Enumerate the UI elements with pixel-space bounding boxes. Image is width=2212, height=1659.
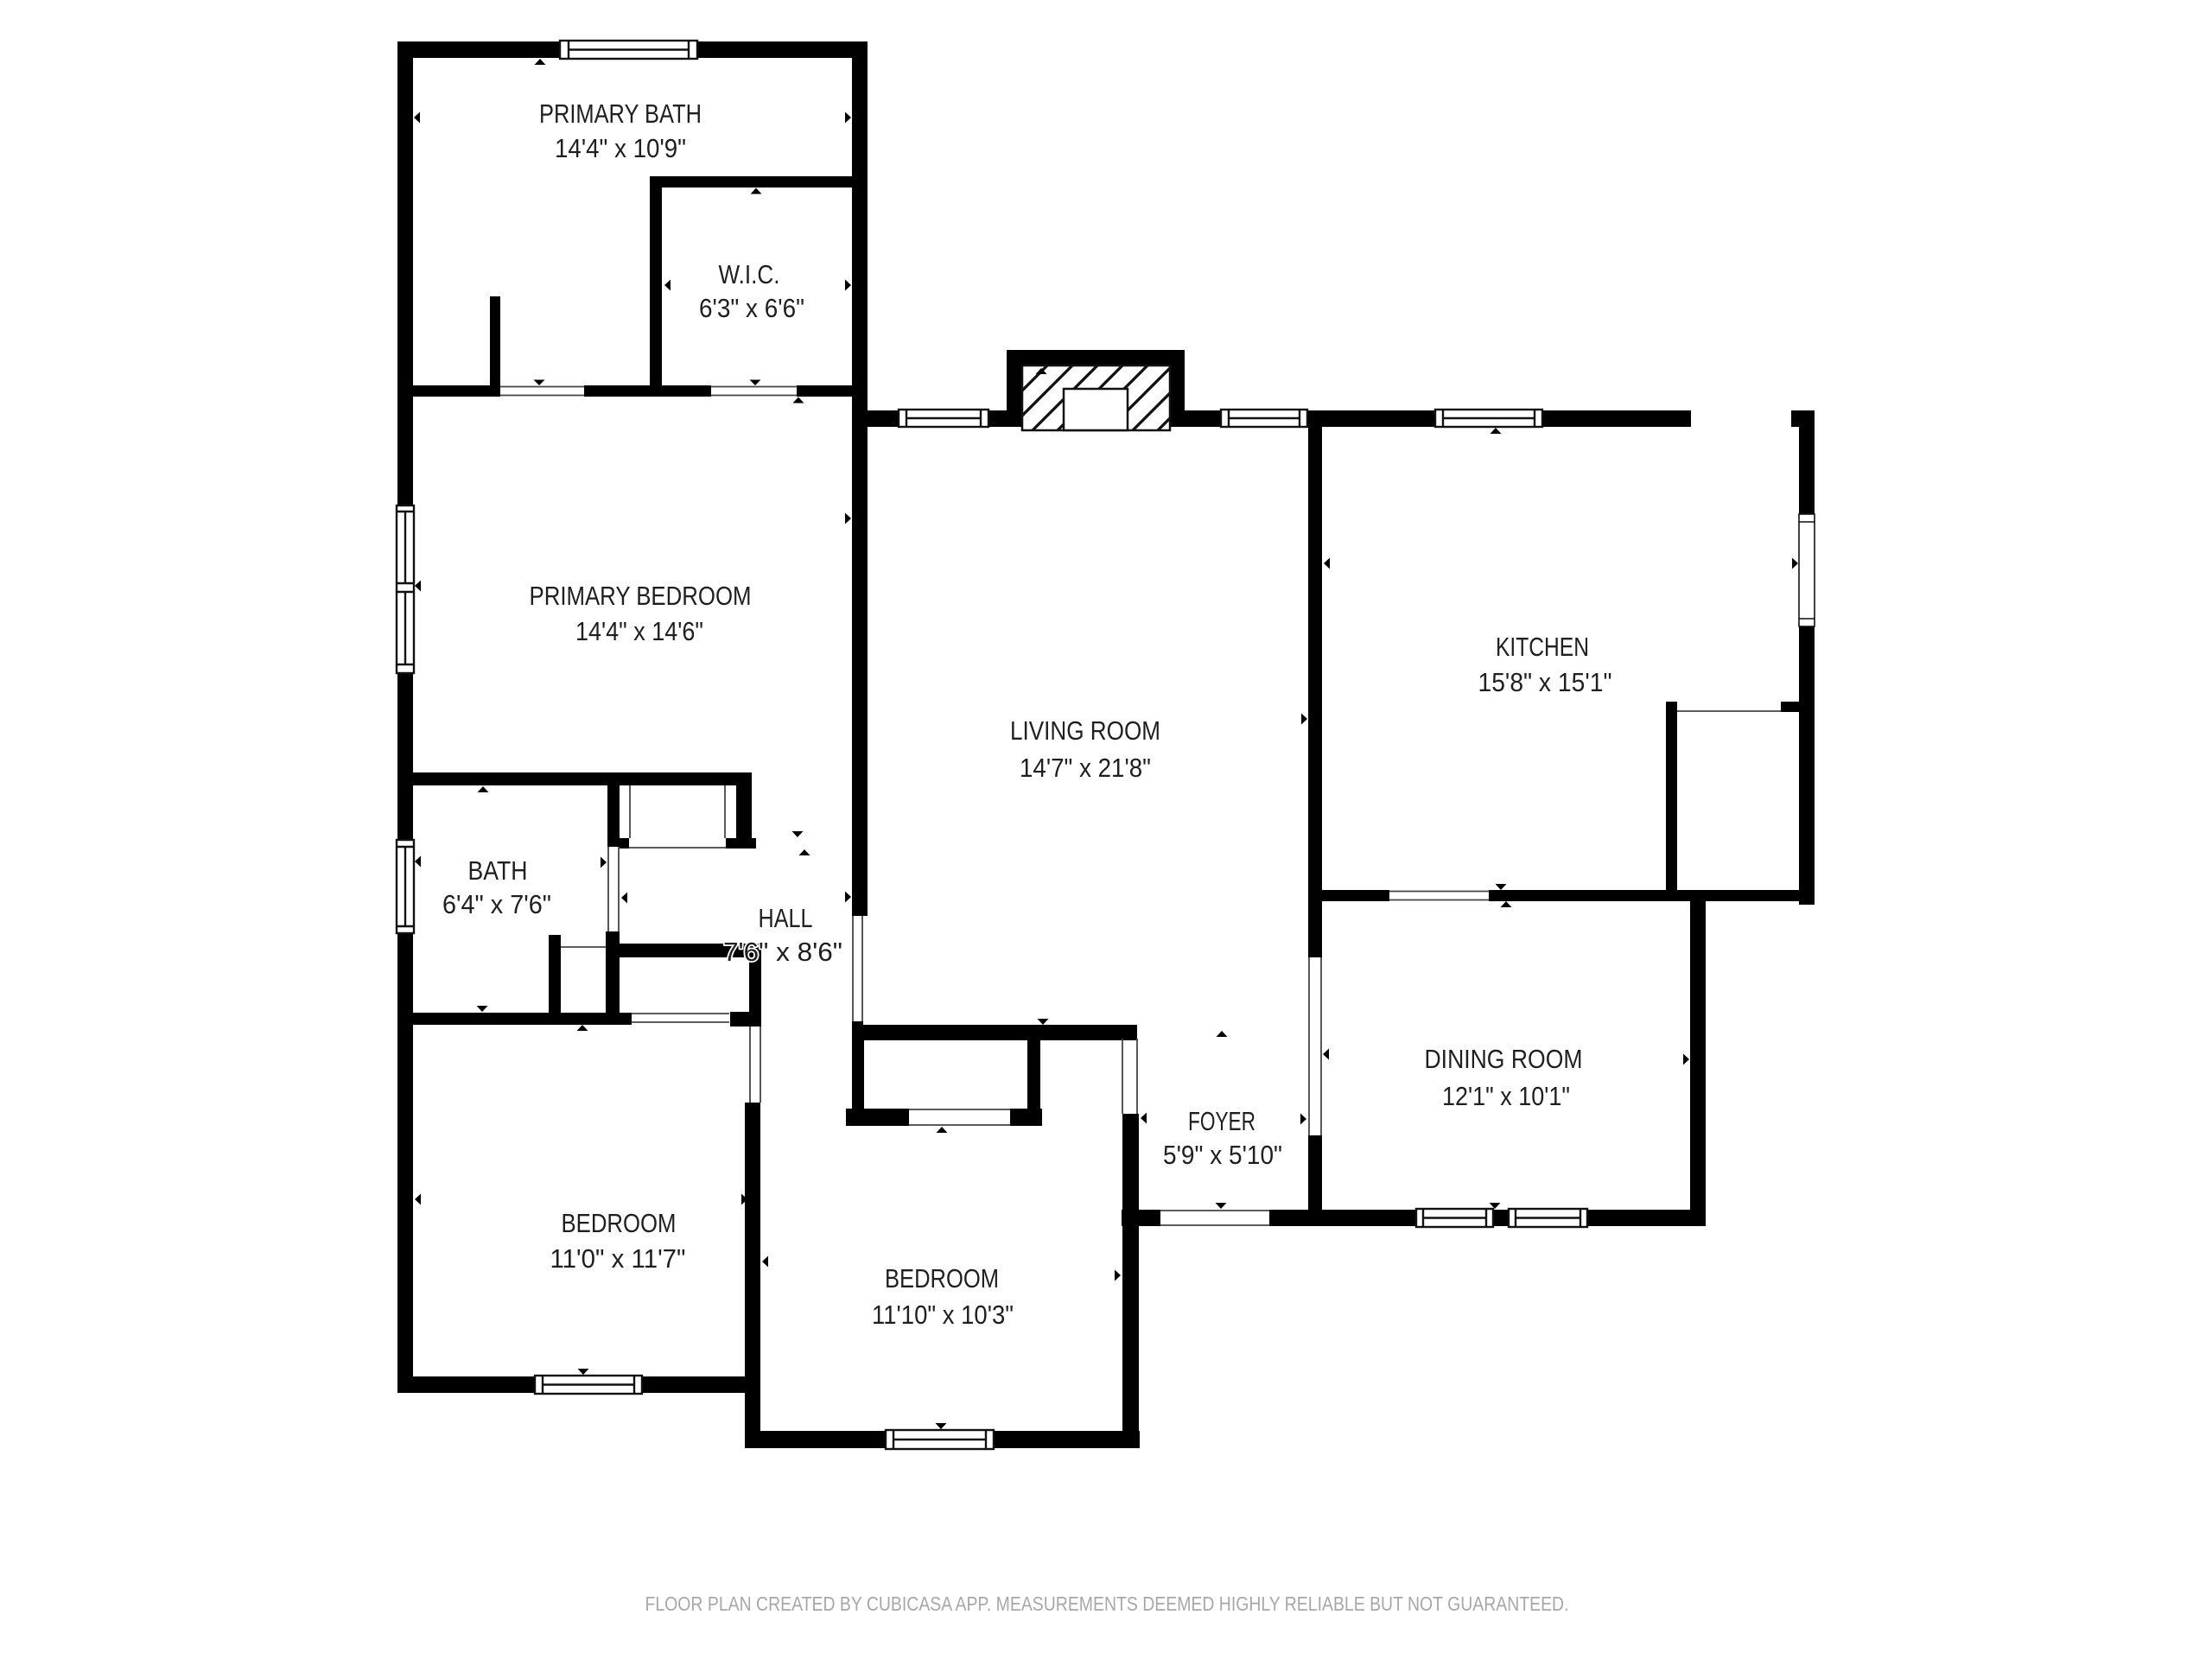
svg-text:BEDROOM: BEDROOM [885,1263,999,1294]
svg-text:BEDROOM: BEDROOM [562,1208,677,1238]
svg-text:DINING ROOM: DINING ROOM [1425,1044,1583,1074]
svg-text:12'1" x 10'1": 12'1" x 10'1" [1442,1081,1570,1111]
svg-text:FOYER: FOYER [1188,1106,1255,1136]
svg-text:6'3" x 6'6": 6'3" x 6'6" [699,293,804,323]
svg-text:15'8" x 15'1": 15'8" x 15'1" [1478,667,1612,697]
svg-text:LIVING ROOM: LIVING ROOM [1010,715,1160,746]
svg-text:7'6" x 8'6": 7'6" x 8'6" [723,937,842,967]
svg-text:FLOOR PLAN CREATED BY CUBICASA: FLOOR PLAN CREATED BY CUBICASA APP. MEAS… [645,1592,1569,1615]
svg-text:11'0" x 11'7": 11'0" x 11'7" [550,1243,686,1274]
svg-text:PRIMARY BEDROOM: PRIMARY BEDROOM [530,581,752,611]
svg-text:KITCHEN: KITCHEN [1496,632,1589,662]
svg-text:14'4" x 10'9": 14'4" x 10'9" [555,133,686,163]
svg-text:14'7" x 21'8": 14'7" x 21'8" [1020,753,1151,783]
svg-text:BATH: BATH [468,855,528,886]
svg-text:14'4" x 14'6": 14'4" x 14'6" [575,616,703,646]
svg-text:HALL: HALL [759,903,813,933]
svg-text:W.I.C.: W.I.C. [719,259,780,289]
svg-text:6'4" x 7'6": 6'4" x 7'6" [442,889,551,919]
svg-text:PRIMARY BATH: PRIMARY BATH [539,99,702,129]
svg-text:5'9" x 5'10": 5'9" x 5'10" [1163,1140,1282,1170]
svg-text:11'10" x 10'3": 11'10" x 10'3" [872,1300,1014,1330]
